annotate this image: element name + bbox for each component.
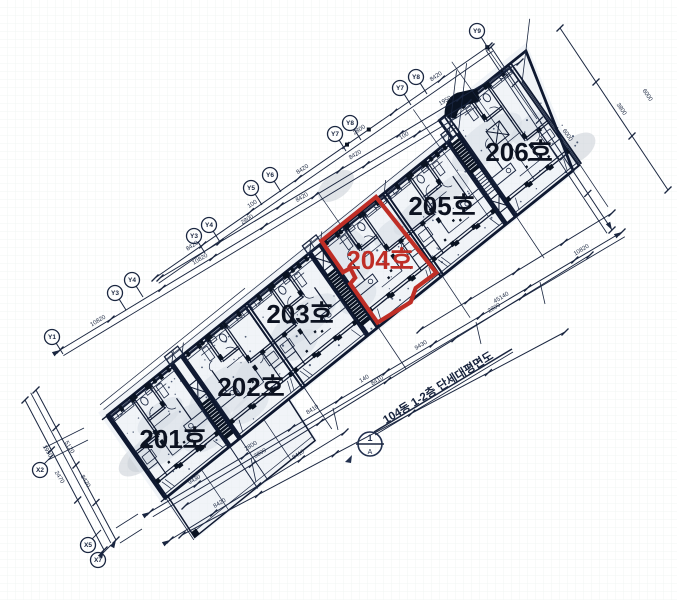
- svg-text:Y7: Y7: [396, 85, 404, 92]
- svg-text:Y3: Y3: [111, 290, 119, 297]
- svg-text:Y4: Y4: [128, 277, 136, 284]
- svg-text:Y1: Y1: [48, 334, 56, 341]
- svg-text:205호: 205호: [408, 191, 475, 221]
- svg-text:Y8: Y8: [346, 120, 354, 127]
- svg-text:Y5: Y5: [247, 185, 255, 192]
- svg-text:Y8: Y8: [412, 74, 420, 81]
- svg-text:Y6: Y6: [266, 172, 274, 179]
- svg-text:A: A: [368, 449, 373, 456]
- svg-text:203호: 203호: [266, 299, 333, 329]
- svg-text:201호: 201호: [139, 424, 206, 454]
- svg-text:Y9: Y9: [473, 28, 481, 35]
- svg-text:Y3: Y3: [190, 233, 198, 240]
- svg-text:X2: X2: [36, 467, 44, 474]
- svg-text:X7: X7: [94, 557, 102, 564]
- svg-text:204호: 204호: [346, 245, 413, 275]
- svg-text:Y7: Y7: [331, 131, 339, 138]
- svg-text:206호: 206호: [485, 137, 552, 167]
- svg-text:1: 1: [367, 433, 372, 443]
- svg-text:X5: X5: [84, 542, 92, 549]
- svg-text:Y4: Y4: [205, 222, 213, 229]
- svg-text:202호: 202호: [217, 372, 284, 402]
